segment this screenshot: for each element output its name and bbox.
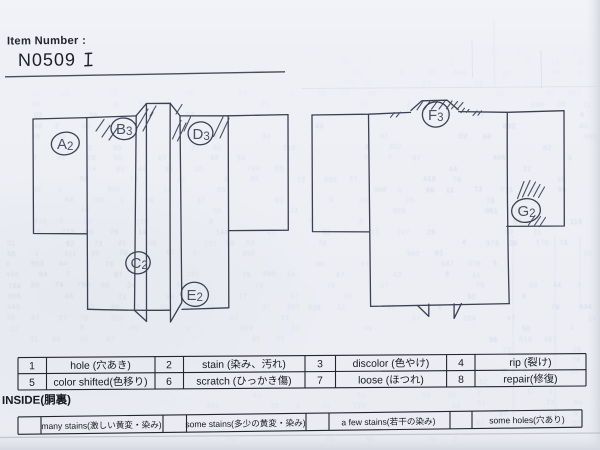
svg-text:46: 46 <box>34 123 43 130</box>
svg-text:43: 43 <box>138 166 147 173</box>
svg-text:83: 83 <box>505 229 514 236</box>
svg-text:399: 399 <box>584 134 597 141</box>
svg-text:scratch (ひっかき傷): scratch (ひっかき傷) <box>196 374 291 388</box>
svg-text:3: 3 <box>579 70 583 77</box>
svg-text:17: 17 <box>360 102 369 109</box>
svg-text:79: 79 <box>182 326 191 333</box>
svg-text:7: 7 <box>577 283 581 290</box>
svg-text:81: 81 <box>165 166 174 173</box>
svg-text:99: 99 <box>364 326 373 333</box>
svg-text:44: 44 <box>553 282 562 289</box>
svg-text:84: 84 <box>39 272 48 279</box>
svg-text:302: 302 <box>107 187 120 194</box>
svg-text:170: 170 <box>536 240 549 247</box>
svg-text:45: 45 <box>359 198 368 205</box>
svg-text:8: 8 <box>407 102 411 109</box>
svg-text:00: 00 <box>345 80 354 87</box>
svg-text:17: 17 <box>476 112 485 119</box>
svg-text:many stains(激しい黄変・染み): many stains(激しい黄変・染み) <box>41 419 162 432</box>
svg-text:692: 692 <box>503 124 516 131</box>
svg-text:8: 8 <box>359 219 363 226</box>
svg-text:10: 10 <box>87 155 96 162</box>
svg-text:14: 14 <box>88 166 97 173</box>
svg-text:1: 1 <box>450 60 454 67</box>
svg-text:44: 44 <box>52 337 61 344</box>
svg-text:73: 73 <box>318 240 327 247</box>
svg-text:868: 868 <box>454 70 467 77</box>
svg-text:1: 1 <box>120 197 124 204</box>
svg-text:36: 36 <box>557 102 566 109</box>
svg-text:88: 88 <box>483 134 492 141</box>
svg-text:9: 9 <box>522 293 526 300</box>
svg-text:73: 73 <box>559 240 568 247</box>
svg-text:5: 5 <box>29 378 35 389</box>
svg-text:46: 46 <box>65 293 74 300</box>
svg-text:4: 4 <box>580 112 584 119</box>
svg-text:996: 996 <box>242 250 255 257</box>
svg-text:2: 2 <box>570 325 574 332</box>
svg-text:79: 79 <box>105 262 114 269</box>
svg-text:45: 45 <box>118 240 127 247</box>
svg-text:435: 435 <box>34 218 47 225</box>
svg-text:84: 84 <box>116 167 125 174</box>
svg-text:035: 035 <box>308 305 321 312</box>
svg-text:14: 14 <box>138 229 147 236</box>
svg-text:25: 25 <box>342 59 351 66</box>
svg-text:74: 74 <box>55 282 64 289</box>
svg-text:31: 31 <box>387 304 396 311</box>
svg-text:37: 37 <box>291 325 300 332</box>
svg-text:56: 56 <box>287 271 296 278</box>
svg-text:51: 51 <box>230 315 239 322</box>
svg-text:28: 28 <box>427 230 436 237</box>
svg-text:201: 201 <box>204 241 217 248</box>
svg-text:32: 32 <box>380 133 389 140</box>
svg-text:2: 2 <box>367 59 371 66</box>
svg-text:11: 11 <box>583 102 591 109</box>
svg-text:78: 78 <box>80 316 89 323</box>
svg-text:21: 21 <box>290 208 299 215</box>
svg-text:13: 13 <box>551 60 560 67</box>
svg-text:498: 498 <box>6 271 19 278</box>
svg-text:21: 21 <box>261 102 270 109</box>
svg-text:246: 246 <box>531 102 544 109</box>
svg-text:333: 333 <box>206 403 219 410</box>
svg-text:82: 82 <box>543 145 552 152</box>
svg-text:443: 443 <box>7 304 20 311</box>
svg-text:790: 790 <box>77 282 90 289</box>
svg-text:613: 613 <box>519 337 532 344</box>
svg-text:2: 2 <box>166 360 172 371</box>
svg-text:31: 31 <box>533 229 542 236</box>
svg-text:826: 826 <box>393 208 406 215</box>
svg-text:a few stains(若干の染み): a few stains(若干の染み) <box>341 415 435 427</box>
svg-text:93: 93 <box>275 197 284 204</box>
svg-text:39: 39 <box>343 293 352 300</box>
svg-text:366: 366 <box>8 294 21 301</box>
svg-text:1: 1 <box>29 361 35 372</box>
svg-text:N0509: N0509 <box>18 49 76 70</box>
svg-text:37: 37 <box>290 294 299 301</box>
svg-text:88: 88 <box>422 393 431 400</box>
svg-text:27: 27 <box>59 315 68 322</box>
svg-text:67: 67 <box>412 316 421 323</box>
svg-text:82: 82 <box>66 241 75 248</box>
svg-text:81: 81 <box>32 101 41 108</box>
svg-text:75: 75 <box>255 283 264 290</box>
svg-text:72: 72 <box>297 177 306 184</box>
svg-text:078: 078 <box>468 261 481 268</box>
svg-text:color shifted(色移り): color shifted(色移り) <box>53 375 147 389</box>
svg-text:7: 7 <box>388 155 392 162</box>
svg-text:09: 09 <box>130 325 139 332</box>
svg-text:36: 36 <box>101 283 110 290</box>
svg-text:discolor (色やけ): discolor (色やけ) <box>353 356 430 370</box>
svg-text:hole (穴あき): hole (穴あき) <box>70 359 131 372</box>
svg-text:6: 6 <box>37 229 41 236</box>
svg-text:79: 79 <box>242 272 251 279</box>
svg-text:52: 52 <box>357 393 366 400</box>
svg-text:4: 4 <box>462 240 466 247</box>
svg-text:63: 63 <box>246 240 255 247</box>
svg-text:80: 80 <box>114 155 123 162</box>
svg-text:21: 21 <box>422 81 431 88</box>
svg-text:9: 9 <box>329 197 333 204</box>
svg-text:794: 794 <box>247 166 260 173</box>
svg-text:76: 76 <box>110 229 119 236</box>
svg-text:21: 21 <box>281 315 290 322</box>
svg-text:26: 26 <box>89 112 98 119</box>
svg-text:11: 11 <box>446 187 454 194</box>
svg-text:31: 31 <box>30 336 39 343</box>
svg-text:947: 947 <box>441 261 454 268</box>
svg-text:47: 47 <box>31 315 40 322</box>
svg-text:0: 0 <box>59 218 63 225</box>
svg-text:7: 7 <box>526 80 530 87</box>
svg-text:96: 96 <box>558 187 567 194</box>
svg-text:some holes(穴あり): some holes(穴あり) <box>489 414 565 426</box>
svg-text:34: 34 <box>262 134 271 141</box>
svg-text:98: 98 <box>226 241 235 248</box>
svg-text:53: 53 <box>496 91 505 98</box>
svg-text:884: 884 <box>240 325 253 332</box>
svg-text:32: 32 <box>33 187 42 194</box>
svg-text:8: 8 <box>458 375 464 386</box>
svg-text:02: 02 <box>271 403 280 410</box>
svg-text:5: 5 <box>493 261 497 268</box>
svg-text:1: 1 <box>35 251 39 258</box>
svg-text:373: 373 <box>486 241 499 248</box>
svg-text:80: 80 <box>428 69 437 76</box>
svg-text:3: 3 <box>296 403 300 410</box>
svg-text:76: 76 <box>453 177 462 184</box>
svg-text:67: 67 <box>507 316 516 323</box>
svg-text:2: 2 <box>55 123 59 130</box>
svg-text:73: 73 <box>474 187 483 194</box>
svg-text:86: 86 <box>448 393 457 400</box>
svg-text:11: 11 <box>366 80 374 87</box>
svg-text:30: 30 <box>467 294 476 301</box>
svg-text:7: 7 <box>66 271 70 278</box>
svg-text:8: 8 <box>445 272 449 279</box>
svg-text:92: 92 <box>252 336 261 343</box>
svg-text:97: 97 <box>114 272 123 279</box>
svg-text:6: 6 <box>6 262 10 269</box>
svg-text:37: 37 <box>262 305 271 312</box>
svg-text:40: 40 <box>579 123 588 130</box>
svg-text:26: 26 <box>573 347 582 354</box>
svg-text:37: 37 <box>349 176 358 183</box>
svg-text:73: 73 <box>427 437 436 444</box>
svg-text:73: 73 <box>546 400 555 407</box>
svg-text:35: 35 <box>250 176 259 183</box>
svg-text:loose (ほつれ): loose (ほつれ) <box>358 374 424 386</box>
svg-text:36: 36 <box>7 315 16 322</box>
svg-text:411: 411 <box>64 251 77 258</box>
svg-text:5: 5 <box>574 410 578 417</box>
svg-text:302: 302 <box>389 144 402 151</box>
svg-text:99: 99 <box>61 91 70 98</box>
svg-text:49: 49 <box>315 124 324 131</box>
svg-text:725: 725 <box>353 403 366 410</box>
svg-text:25: 25 <box>91 251 100 258</box>
svg-text:37: 37 <box>197 198 206 205</box>
svg-text:55: 55 <box>7 251 16 258</box>
svg-text:48: 48 <box>210 155 219 162</box>
svg-text:44: 44 <box>59 261 68 268</box>
svg-text:50: 50 <box>213 208 222 215</box>
svg-text:27: 27 <box>341 90 350 97</box>
svg-text:5: 5 <box>568 156 572 163</box>
svg-text:72: 72 <box>305 49 314 56</box>
svg-text:repair(修復): repair(修復) <box>503 372 557 385</box>
svg-text:2: 2 <box>572 49 576 56</box>
svg-text:7: 7 <box>526 59 530 66</box>
svg-text:99: 99 <box>489 337 498 344</box>
svg-text:33: 33 <box>317 91 326 98</box>
svg-text:702: 702 <box>92 197 105 204</box>
svg-text:52: 52 <box>475 80 484 87</box>
svg-text:116: 116 <box>570 219 583 226</box>
svg-text:406: 406 <box>493 155 506 162</box>
svg-text:41: 41 <box>253 393 262 400</box>
svg-text:52: 52 <box>479 379 488 386</box>
svg-text:13: 13 <box>371 230 380 237</box>
svg-text:2: 2 <box>453 437 457 444</box>
svg-text:06: 06 <box>368 91 377 98</box>
svg-text:37: 37 <box>380 283 389 290</box>
svg-text:81: 81 <box>322 403 331 410</box>
svg-text:2: 2 <box>477 389 481 396</box>
svg-text:22: 22 <box>337 304 346 311</box>
svg-text:2: 2 <box>88 145 92 152</box>
svg-text:27: 27 <box>588 316 597 323</box>
svg-text:718: 718 <box>62 229 75 236</box>
svg-text:773: 773 <box>500 187 513 194</box>
svg-text:01: 01 <box>80 337 89 344</box>
svg-text:86: 86 <box>81 207 90 214</box>
svg-text:109: 109 <box>136 219 149 226</box>
svg-text:50: 50 <box>529 283 538 290</box>
svg-text:09: 09 <box>326 437 335 444</box>
svg-text:45: 45 <box>354 69 363 76</box>
svg-text:rip (裂け): rip (裂け) <box>509 356 551 369</box>
svg-text:259: 259 <box>463 316 476 323</box>
svg-text:44: 44 <box>449 166 458 173</box>
svg-text:70: 70 <box>119 250 128 257</box>
svg-text:962: 962 <box>407 251 420 258</box>
svg-text:4: 4 <box>290 90 294 97</box>
svg-text:59: 59 <box>227 437 236 444</box>
svg-text:30: 30 <box>213 145 222 152</box>
svg-text:418: 418 <box>423 176 436 183</box>
svg-text:87: 87 <box>336 272 345 279</box>
svg-text:81: 81 <box>435 251 444 258</box>
svg-text:17: 17 <box>239 294 248 301</box>
svg-text:061: 061 <box>485 208 498 215</box>
svg-text:5: 5 <box>80 325 84 332</box>
svg-text:01: 01 <box>584 251 593 258</box>
svg-text:78: 78 <box>572 358 581 365</box>
svg-text:920: 920 <box>111 315 124 322</box>
svg-text:43: 43 <box>393 272 402 279</box>
svg-text:2: 2 <box>58 187 62 194</box>
svg-text:05: 05 <box>406 198 415 205</box>
svg-text:86: 86 <box>426 187 435 194</box>
svg-text:6: 6 <box>400 70 404 77</box>
svg-text:966: 966 <box>263 271 276 278</box>
svg-text:94: 94 <box>239 91 248 98</box>
svg-text:07: 07 <box>547 91 556 98</box>
svg-text:4: 4 <box>458 358 464 369</box>
svg-text:148: 148 <box>216 229 229 236</box>
svg-text:6: 6 <box>166 377 172 388</box>
svg-text:10: 10 <box>194 166 203 173</box>
svg-text:83: 83 <box>109 90 118 97</box>
svg-text:73: 73 <box>94 241 103 248</box>
svg-text:84: 84 <box>574 400 583 407</box>
svg-text:5: 5 <box>193 251 197 258</box>
svg-text:74: 74 <box>130 176 139 183</box>
svg-text:72: 72 <box>503 347 512 354</box>
svg-text:02: 02 <box>459 133 468 140</box>
svg-text:908: 908 <box>374 187 387 194</box>
svg-text:3: 3 <box>114 102 118 109</box>
svg-text:6: 6 <box>438 305 442 312</box>
svg-text:37: 37 <box>412 155 421 162</box>
svg-text:247: 247 <box>397 230 410 237</box>
svg-text:11: 11 <box>578 59 586 66</box>
svg-text:744: 744 <box>8 283 21 290</box>
svg-text:216: 216 <box>283 145 296 152</box>
svg-text:57: 57 <box>361 261 370 268</box>
svg-text:55: 55 <box>237 156 246 163</box>
svg-text:67: 67 <box>503 70 512 77</box>
svg-text:65: 65 <box>366 437 375 444</box>
svg-text:230: 230 <box>186 272 199 279</box>
svg-text:27: 27 <box>191 145 200 152</box>
svg-text:397: 397 <box>568 91 581 98</box>
svg-text:8: 8 <box>209 219 213 226</box>
svg-text:7: 7 <box>317 376 323 387</box>
svg-text:61: 61 <box>477 400 486 407</box>
svg-text:some stains(多少の黄変・染み): some stains(多少の黄変・染み) <box>185 417 306 430</box>
svg-text:43: 43 <box>452 403 461 410</box>
svg-text:662: 662 <box>287 304 300 311</box>
svg-text:INSIDE(胴裏): INSIDE(胴裏) <box>2 392 71 407</box>
svg-text:76: 76 <box>327 283 336 290</box>
svg-text:22: 22 <box>10 326 19 333</box>
svg-text:80: 80 <box>31 283 40 290</box>
svg-text:634: 634 <box>579 304 592 311</box>
svg-text:41: 41 <box>472 272 481 279</box>
svg-text:680: 680 <box>324 177 337 184</box>
svg-text:54: 54 <box>65 197 74 204</box>
svg-text:27: 27 <box>572 421 581 428</box>
svg-text:5: 5 <box>398 188 402 195</box>
svg-text:79: 79 <box>476 283 485 290</box>
svg-text:09: 09 <box>148 241 157 248</box>
svg-text:69: 69 <box>85 229 94 236</box>
svg-text:Item Number :: Item Number : <box>7 35 86 48</box>
svg-text:93: 93 <box>57 155 66 162</box>
svg-text:92: 92 <box>322 229 331 236</box>
svg-text:00: 00 <box>316 262 325 269</box>
svg-text:5: 5 <box>364 155 368 162</box>
svg-text:97: 97 <box>106 336 115 343</box>
svg-text:71: 71 <box>118 294 127 301</box>
svg-text:58: 58 <box>553 70 562 77</box>
svg-text:42: 42 <box>31 91 40 98</box>
svg-text:87: 87 <box>476 421 485 428</box>
svg-text:78: 78 <box>486 198 495 205</box>
svg-text:07: 07 <box>276 336 285 343</box>
svg-text:67: 67 <box>158 155 167 162</box>
svg-text:6: 6 <box>549 389 553 396</box>
svg-text:01: 01 <box>7 241 16 248</box>
svg-text:55: 55 <box>275 166 284 173</box>
svg-text:22: 22 <box>523 166 532 173</box>
svg-text:27: 27 <box>177 177 186 184</box>
svg-text:3: 3 <box>317 359 323 370</box>
svg-text:853: 853 <box>31 261 44 268</box>
svg-text:47: 47 <box>527 389 536 396</box>
svg-text:03: 03 <box>217 187 226 194</box>
svg-text:99: 99 <box>185 91 194 98</box>
svg-text:60: 60 <box>113 145 122 152</box>
svg-text:stain (染み、汚れ): stain (染み、汚れ) <box>202 357 286 371</box>
svg-text:58: 58 <box>522 326 531 333</box>
svg-text:8: 8 <box>516 48 520 55</box>
